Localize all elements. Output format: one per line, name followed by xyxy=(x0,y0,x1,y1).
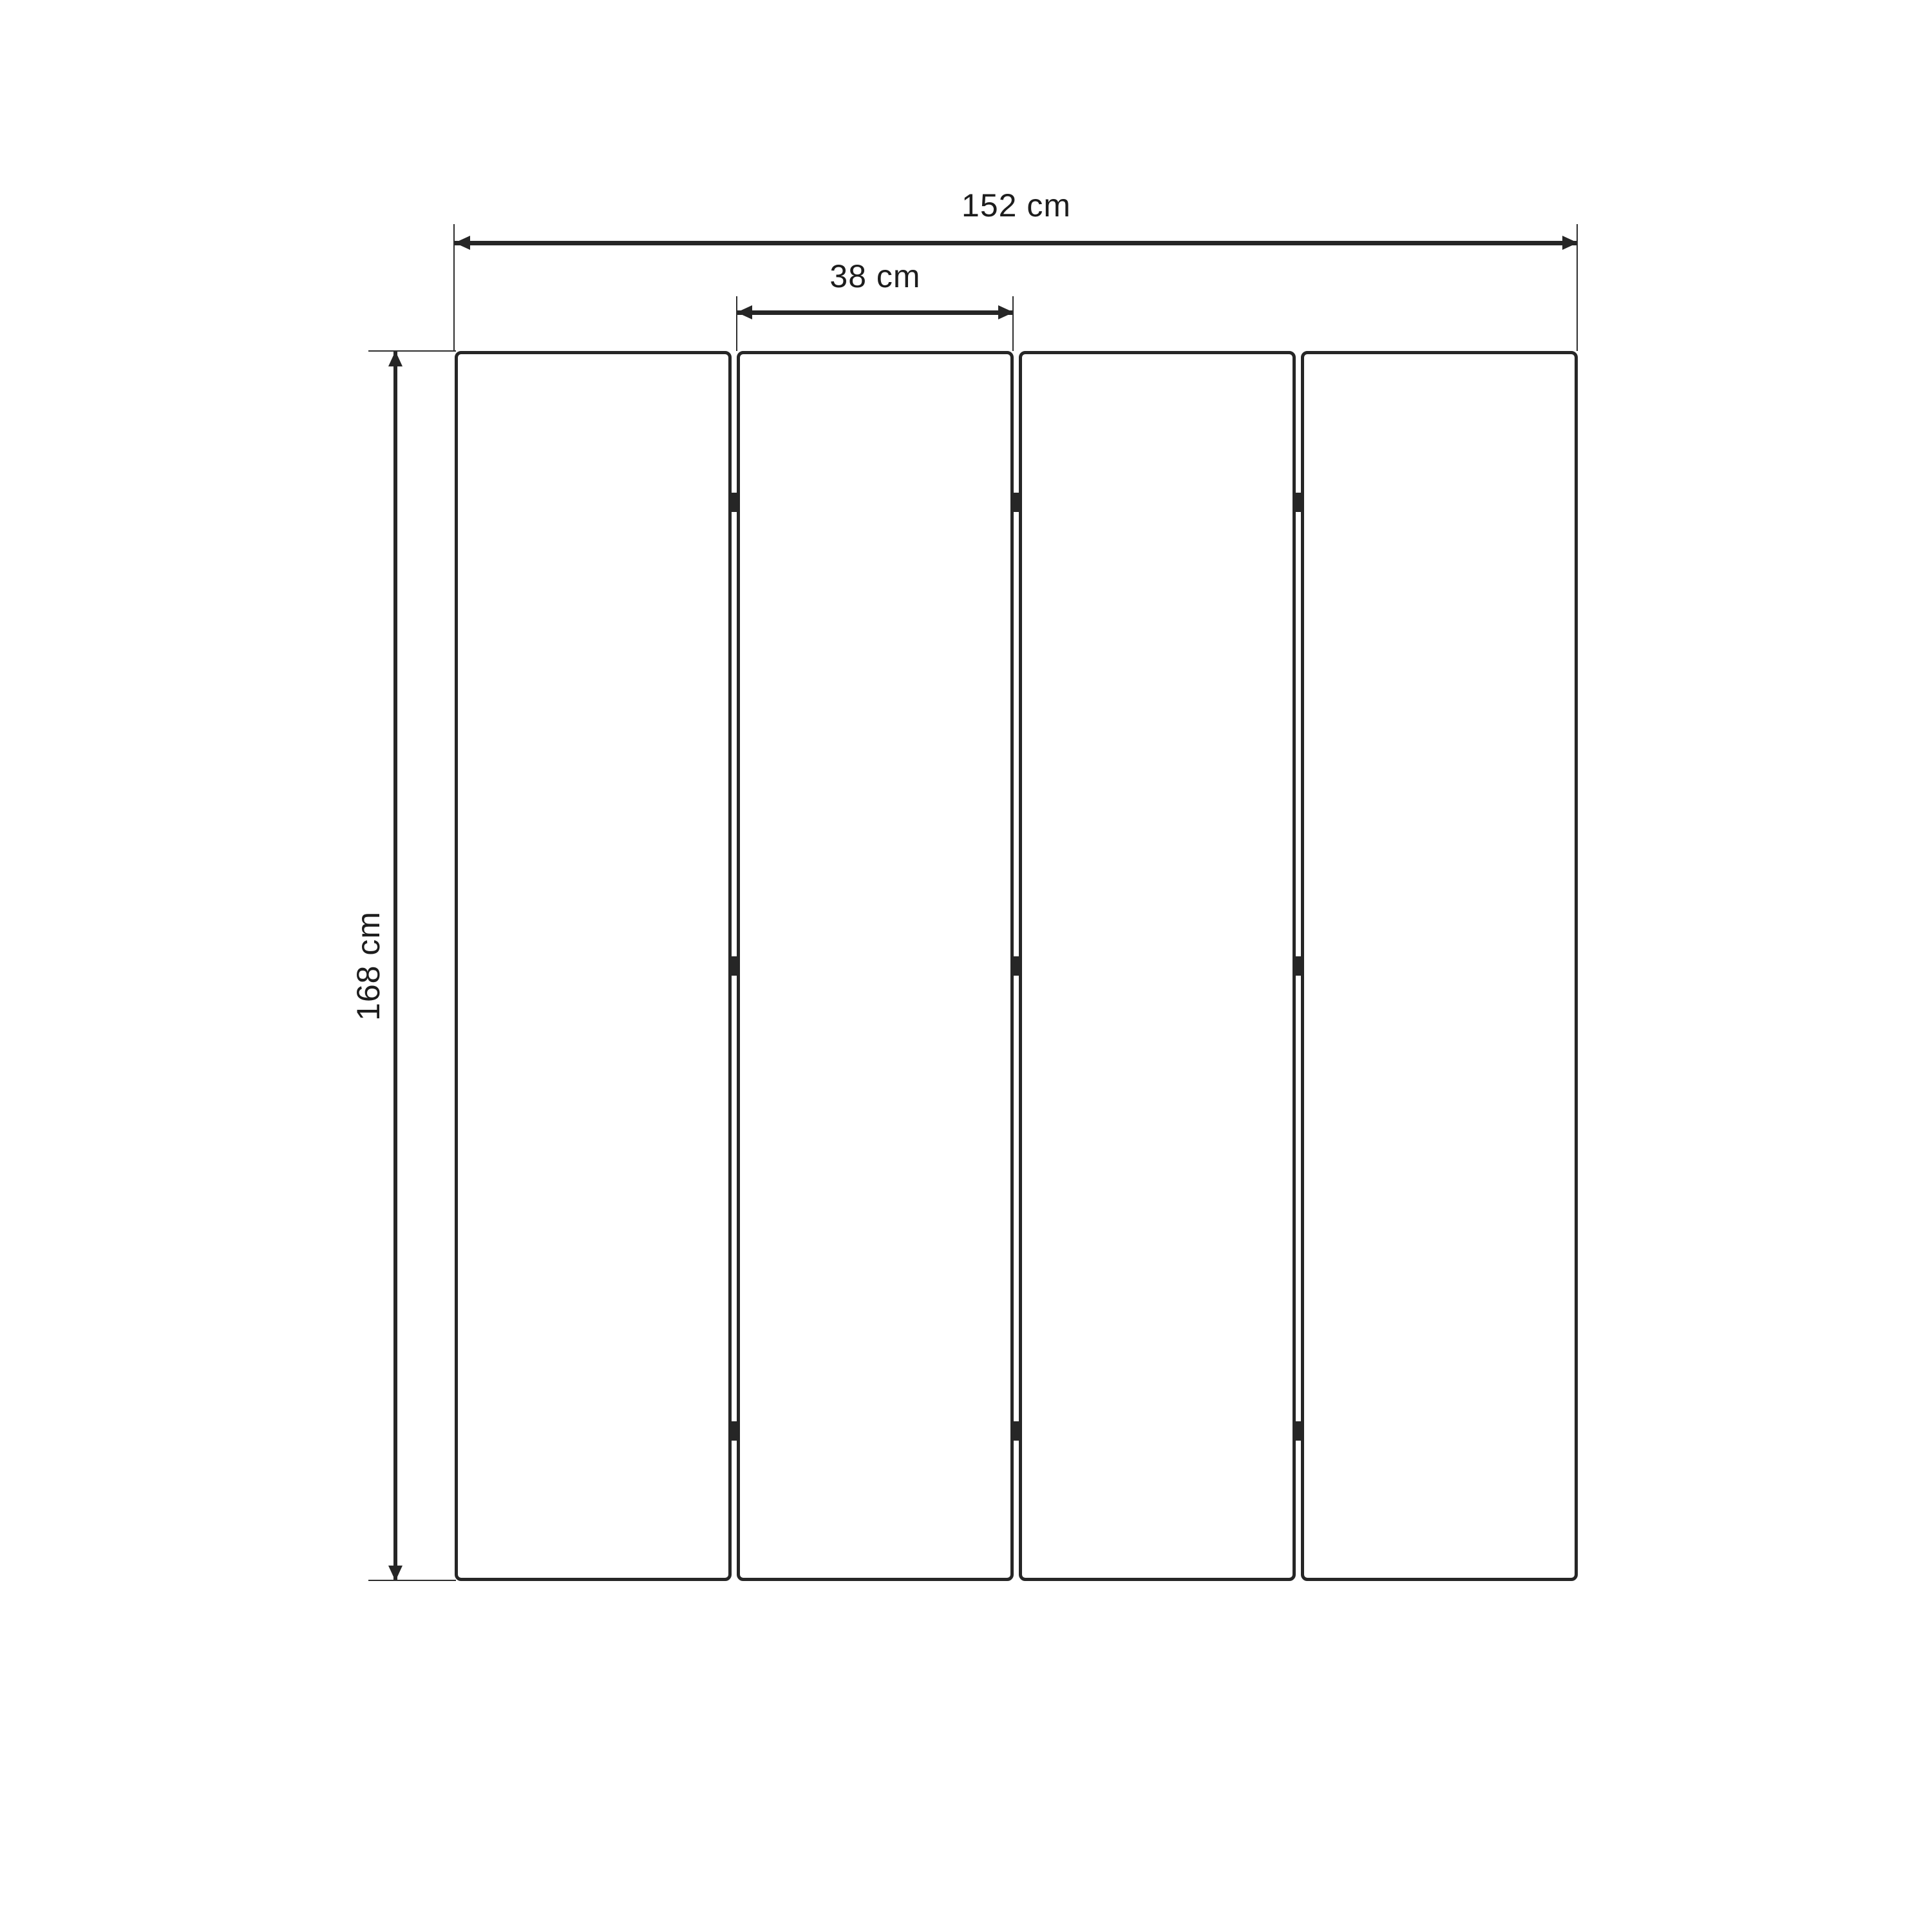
hinge xyxy=(730,956,738,976)
panel-width-extension-left xyxy=(736,296,737,351)
hinge xyxy=(1294,493,1302,512)
arrow-left-icon xyxy=(455,236,470,250)
panel-width-dimension-line xyxy=(737,310,1014,315)
dimension-diagram: 152 cm 38 cm 168 cm xyxy=(0,0,1932,1932)
height-dimension-line xyxy=(393,351,397,1581)
height-label: 168 cm xyxy=(348,837,388,1095)
panel-1 xyxy=(455,351,732,1581)
hinge xyxy=(1294,956,1302,976)
panel-2 xyxy=(737,351,1014,1581)
total-width-extension-left xyxy=(453,224,455,351)
arrow-right-icon xyxy=(998,305,1014,319)
hinge xyxy=(1012,493,1020,512)
hinge xyxy=(1012,1421,1020,1441)
height-extension-bottom xyxy=(368,1580,456,1581)
arrow-down-icon xyxy=(388,1566,402,1581)
arrow-up-icon xyxy=(388,351,402,366)
total-width-extension-right xyxy=(1577,224,1578,351)
height-extension-top xyxy=(368,350,456,352)
panel-width-label: 38 cm xyxy=(746,256,1004,296)
hinge xyxy=(1012,956,1020,976)
arrow-right-icon xyxy=(1562,236,1578,250)
hinge xyxy=(1294,1421,1302,1441)
panel-3 xyxy=(1019,351,1296,1581)
panel-width-extension-right xyxy=(1012,296,1014,351)
panel-4 xyxy=(1301,351,1578,1581)
total-width-label: 152 cm xyxy=(887,185,1145,225)
hinge xyxy=(730,1421,738,1441)
hinge xyxy=(730,493,738,512)
total-width-dimension-line xyxy=(455,241,1578,245)
arrow-left-icon xyxy=(737,305,752,319)
